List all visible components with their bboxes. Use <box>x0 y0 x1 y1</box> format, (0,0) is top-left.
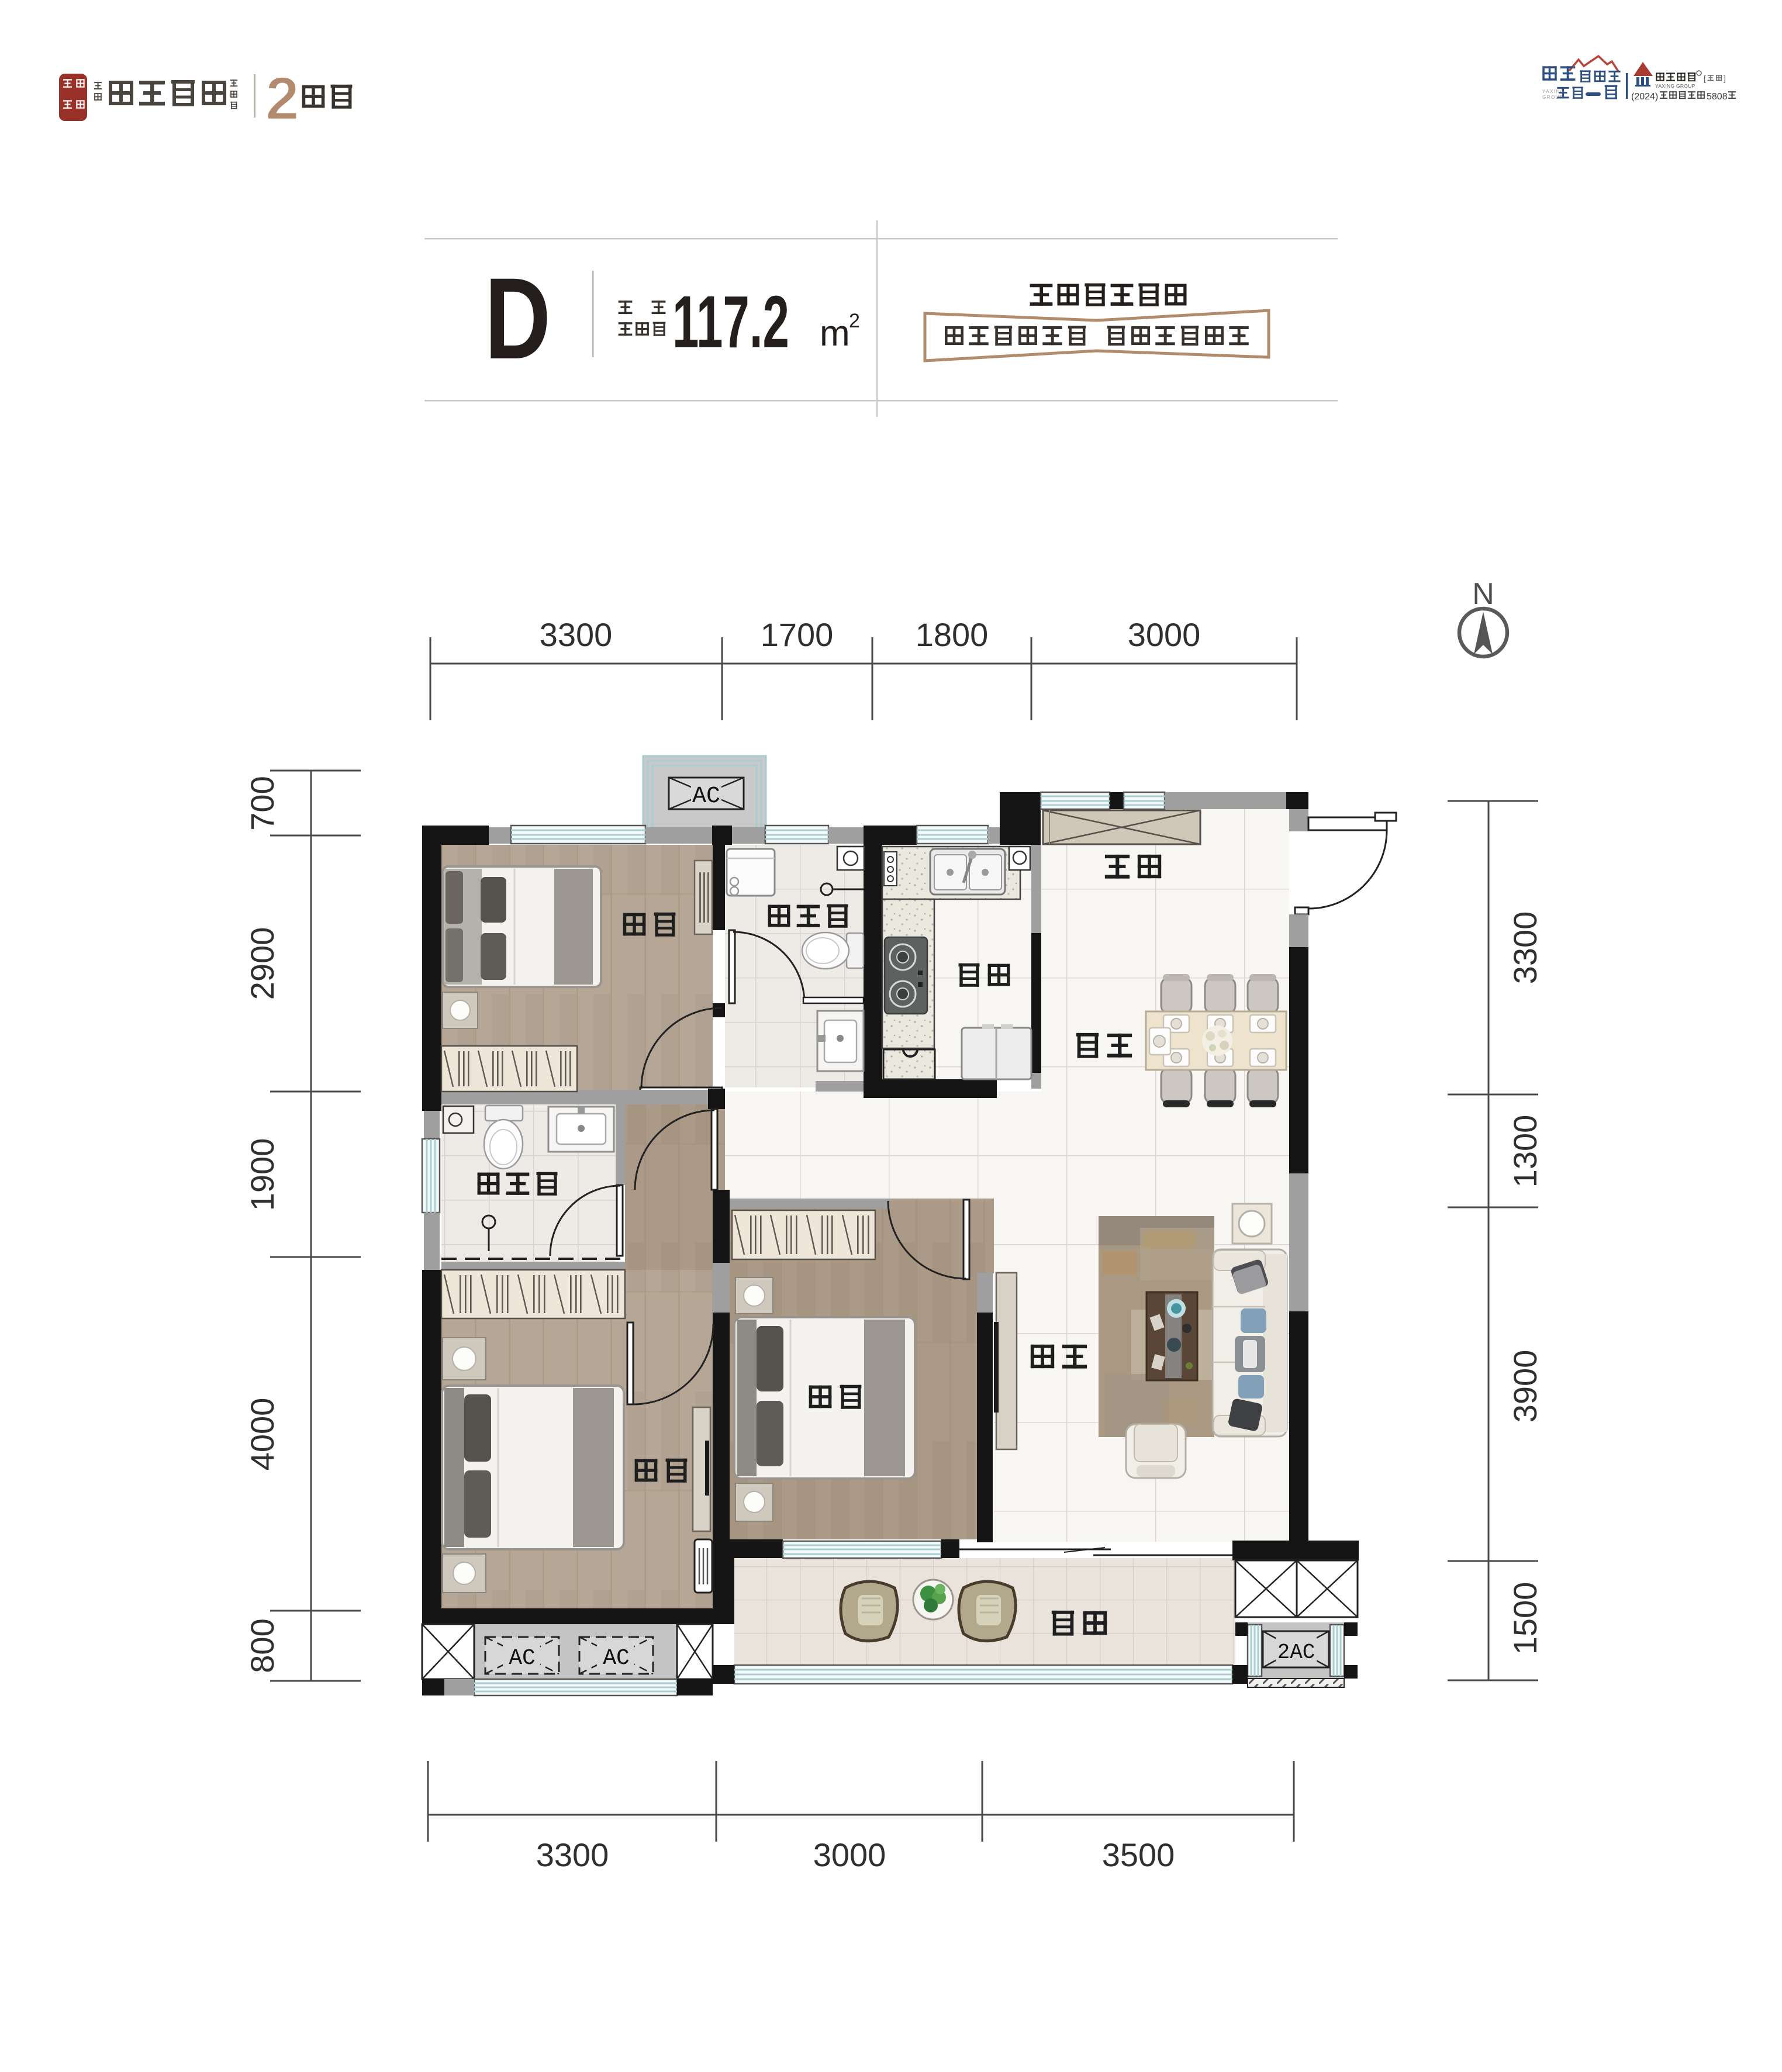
svg-text:3300: 3300 <box>1507 911 1543 985</box>
svg-text:(2024): (2024) <box>1631 92 1658 102</box>
svg-text:AC: AC <box>509 1646 536 1671</box>
svg-text:1700: 1700 <box>761 616 834 653</box>
svg-text:m: m <box>820 313 850 354</box>
svg-text:1300: 1300 <box>1507 1115 1543 1188</box>
svg-text:5808: 5808 <box>1707 92 1728 102</box>
svg-text:AC: AC <box>603 1646 630 1671</box>
svg-text:YAXING GROUP: YAXING GROUP <box>1655 83 1695 89</box>
svg-text:3000: 3000 <box>1128 616 1201 653</box>
svg-text:D: D <box>485 254 551 383</box>
svg-text:3500: 3500 <box>1102 1836 1175 1873</box>
svg-text:1800: 1800 <box>916 616 989 653</box>
svg-text:]: ] <box>1724 74 1726 83</box>
svg-text:700: 700 <box>244 776 281 830</box>
svg-text:[: [ <box>1704 74 1706 83</box>
svg-text:800: 800 <box>244 1618 281 1673</box>
svg-text:3900: 3900 <box>1507 1350 1543 1423</box>
svg-text:3000: 3000 <box>813 1836 886 1873</box>
svg-text:117.2: 117.2 <box>672 281 789 363</box>
svg-text:AC: AC <box>692 783 720 810</box>
svg-text:2: 2 <box>849 310 860 332</box>
svg-text:1900: 1900 <box>244 1138 281 1211</box>
svg-text:3300: 3300 <box>540 616 613 653</box>
svg-text:2900: 2900 <box>244 927 281 1000</box>
svg-text:2: 2 <box>265 65 299 133</box>
svg-text:1500: 1500 <box>1507 1582 1543 1655</box>
svg-text:2AC: 2AC <box>1277 1641 1315 1664</box>
svg-text:4000: 4000 <box>244 1398 281 1471</box>
svg-text:N: N <box>1472 577 1494 611</box>
svg-text:3300: 3300 <box>536 1836 609 1873</box>
